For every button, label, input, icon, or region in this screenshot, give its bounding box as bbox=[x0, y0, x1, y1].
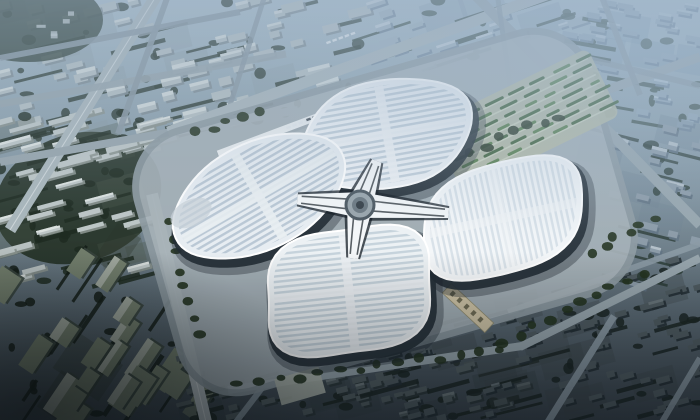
aerial-rendering bbox=[0, 0, 700, 420]
atmosphere-layer bbox=[0, 0, 700, 420]
scene-canvas bbox=[0, 0, 700, 420]
